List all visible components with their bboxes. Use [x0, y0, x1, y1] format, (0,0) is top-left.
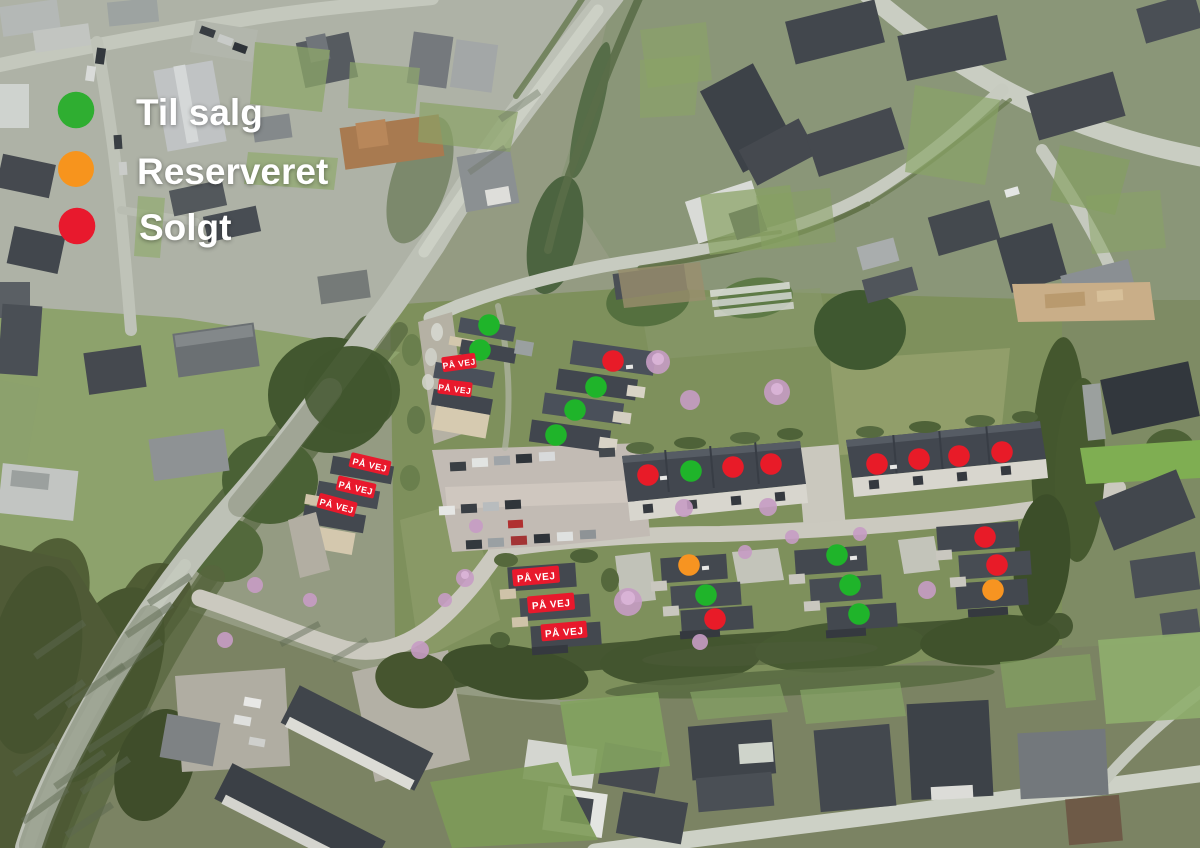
- svg-text:Solgt: Solgt: [139, 207, 231, 248]
- svg-text:Reserveret: Reserveret: [137, 151, 328, 192]
- svg-text:Til salg: Til salg: [136, 92, 263, 133]
